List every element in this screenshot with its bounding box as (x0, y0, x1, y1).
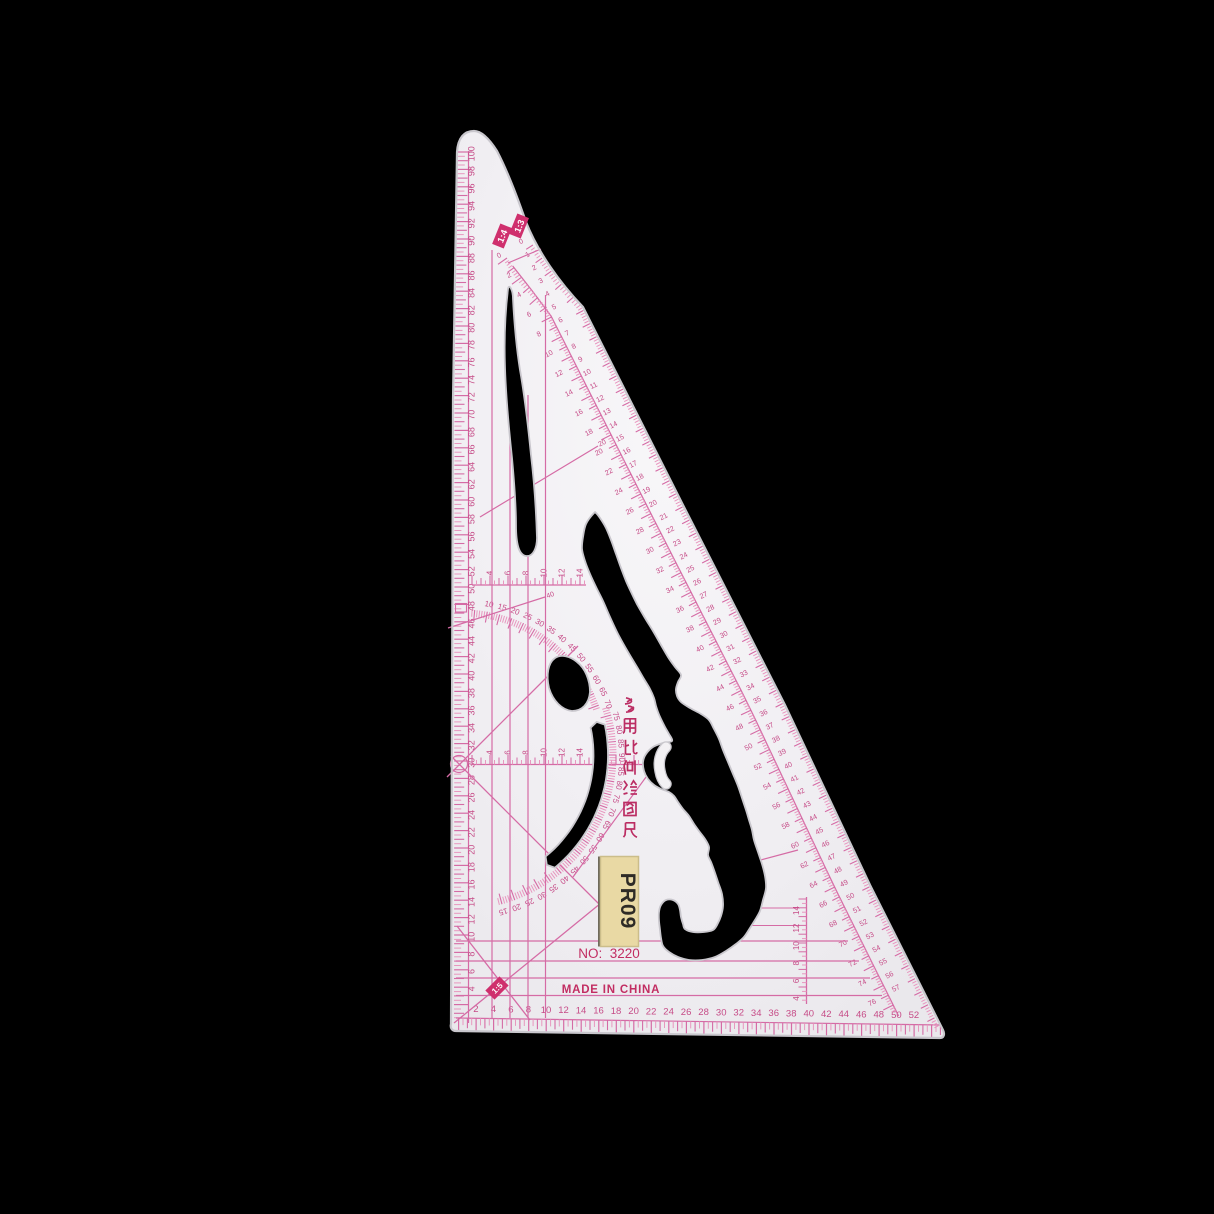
svg-text:68: 68 (467, 427, 477, 437)
svg-text:12: 12 (467, 914, 477, 924)
svg-text:70: 70 (467, 410, 477, 420)
svg-text:4: 4 (467, 986, 477, 991)
svg-text:14: 14 (467, 897, 477, 907)
svg-text:64: 64 (467, 462, 477, 472)
svg-text:44: 44 (839, 1009, 850, 1020)
svg-text:42: 42 (467, 653, 477, 663)
svg-text:8: 8 (522, 570, 531, 575)
svg-text:84: 84 (467, 288, 477, 298)
svg-text:22: 22 (646, 1006, 657, 1017)
svg-text:96: 96 (467, 183, 477, 193)
svg-text:48: 48 (874, 1010, 885, 1021)
svg-text:14: 14 (576, 568, 585, 577)
svg-text:40: 40 (467, 671, 477, 681)
svg-text:52: 52 (909, 1010, 920, 1021)
svg-text:36: 36 (467, 705, 477, 715)
svg-text:48: 48 (467, 601, 477, 611)
svg-text:92: 92 (467, 218, 477, 228)
svg-text:14: 14 (792, 906, 801, 915)
svg-text:16: 16 (467, 879, 477, 889)
svg-text:NO: 3220: NO: 3220 (578, 946, 640, 961)
svg-text:6: 6 (792, 978, 801, 983)
svg-text:40: 40 (804, 1009, 815, 1020)
svg-text:34: 34 (467, 723, 477, 733)
svg-text:46: 46 (856, 1009, 867, 1020)
svg-text:8: 8 (522, 750, 531, 755)
svg-text:4: 4 (486, 570, 495, 575)
svg-text:12: 12 (558, 568, 567, 577)
svg-text:85: 85 (616, 739, 626, 749)
svg-text:54: 54 (467, 549, 477, 559)
svg-text:MADE IN CHINA: MADE IN CHINA (562, 984, 661, 996)
svg-text:76: 76 (467, 357, 477, 367)
svg-text:10: 10 (792, 941, 801, 950)
svg-text:100: 100 (467, 146, 477, 161)
svg-text:60: 60 (467, 497, 477, 507)
svg-text:6: 6 (467, 969, 477, 974)
svg-text:10: 10 (540, 568, 549, 577)
svg-text:62: 62 (467, 479, 477, 489)
svg-text:32: 32 (733, 1008, 744, 1019)
svg-text:8: 8 (467, 952, 477, 957)
svg-text:24: 24 (663, 1007, 674, 1018)
svg-text:6: 6 (504, 750, 513, 755)
svg-text:34: 34 (751, 1008, 762, 1019)
svg-text:6: 6 (504, 570, 513, 575)
svg-text:4: 4 (486, 750, 495, 755)
svg-text:94: 94 (467, 201, 477, 211)
svg-text:4: 4 (792, 996, 801, 1001)
svg-text:66: 66 (467, 444, 477, 454)
svg-text:38: 38 (786, 1008, 797, 1019)
svg-text:12: 12 (558, 748, 567, 757)
svg-text:14: 14 (576, 1005, 587, 1016)
svg-text:86: 86 (467, 270, 477, 280)
svg-text:30: 30 (716, 1007, 727, 1018)
svg-text:74: 74 (467, 375, 477, 385)
svg-text:80: 80 (467, 323, 477, 333)
svg-text:6: 6 (508, 1004, 513, 1015)
svg-text:42: 42 (821, 1009, 832, 1020)
svg-text:78: 78 (467, 340, 477, 350)
svg-text:56: 56 (467, 531, 477, 541)
svg-text:24: 24 (467, 810, 477, 820)
svg-text:12: 12 (558, 1005, 569, 1016)
svg-text:26: 26 (681, 1007, 692, 1018)
svg-text:26: 26 (467, 792, 477, 802)
svg-text:72: 72 (467, 392, 477, 402)
svg-text:8: 8 (792, 961, 801, 966)
svg-text:58: 58 (467, 514, 477, 524)
svg-text:12: 12 (792, 923, 801, 932)
svg-text:36: 36 (768, 1008, 779, 1019)
svg-text:16: 16 (593, 1006, 604, 1017)
svg-text:28: 28 (698, 1007, 709, 1018)
svg-text:90: 90 (467, 236, 477, 246)
svg-text:18: 18 (467, 862, 477, 872)
svg-text:52: 52 (467, 566, 477, 576)
svg-text:38: 38 (467, 688, 477, 698)
svg-text:10: 10 (540, 748, 549, 757)
svg-text:98: 98 (467, 166, 477, 176)
svg-text:18: 18 (611, 1006, 622, 1017)
svg-text:82: 82 (467, 305, 477, 315)
svg-text:88: 88 (467, 253, 477, 263)
svg-text:44: 44 (467, 636, 477, 646)
svg-text:20: 20 (628, 1006, 639, 1017)
svg-text:22: 22 (467, 827, 477, 837)
svg-text:20: 20 (467, 845, 477, 855)
svg-text:PR09: PR09 (616, 873, 639, 930)
svg-text:14: 14 (576, 748, 585, 757)
